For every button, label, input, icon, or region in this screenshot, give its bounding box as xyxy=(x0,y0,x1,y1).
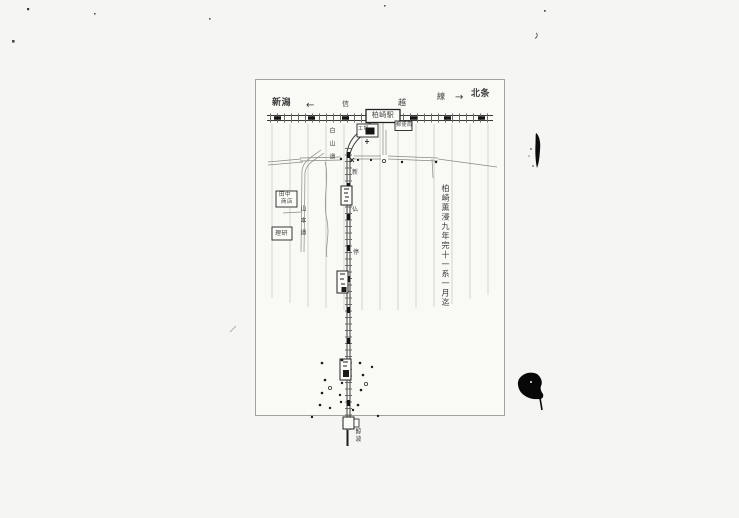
road-text-center: 白山道 xyxy=(328,127,334,166)
office-box-label: 郵便局 xyxy=(396,123,411,128)
ink-blob-smudge xyxy=(528,133,540,168)
branch-char-3: 停 xyxy=(353,250,360,256)
line-char-shin: 信 xyxy=(342,101,350,108)
branch-char-1: 新 xyxy=(352,170,359,176)
lab-box-label: 理研 xyxy=(275,231,288,237)
right-arrow: → xyxy=(455,93,464,103)
road-text-left: 山本道 xyxy=(299,205,305,241)
station-boxes xyxy=(272,110,412,430)
ink-blob-large xyxy=(518,373,543,410)
scanned-map-page: 新潟 ← 信 越 線 → 北条 柏崎駅 郵便局 工場 田中 商店 理研 白山道 … xyxy=(0,0,739,518)
line-char-sen: 線 xyxy=(437,93,446,101)
bottom-station-label: 鯨波 xyxy=(354,428,360,443)
main-station-label: 柏崎駅 xyxy=(367,112,399,119)
direction-left-label: 新潟 xyxy=(272,99,291,108)
shop-box-label-line2: 商店 xyxy=(281,200,293,206)
branch-char-2: 仏 xyxy=(352,207,359,213)
right-margin-note: 柏崎薫浸九年完十一系一月迄 xyxy=(441,184,449,308)
map-drawing xyxy=(0,0,739,518)
line-char-etsu: 越 xyxy=(398,99,407,107)
scan-specks xyxy=(12,5,546,332)
shop-box-label-line1: 田中 xyxy=(279,193,291,199)
left-arrow: ← xyxy=(306,101,315,111)
factory-box-label: 工場 xyxy=(358,127,369,132)
direction-right-label: 北条 xyxy=(471,90,490,99)
